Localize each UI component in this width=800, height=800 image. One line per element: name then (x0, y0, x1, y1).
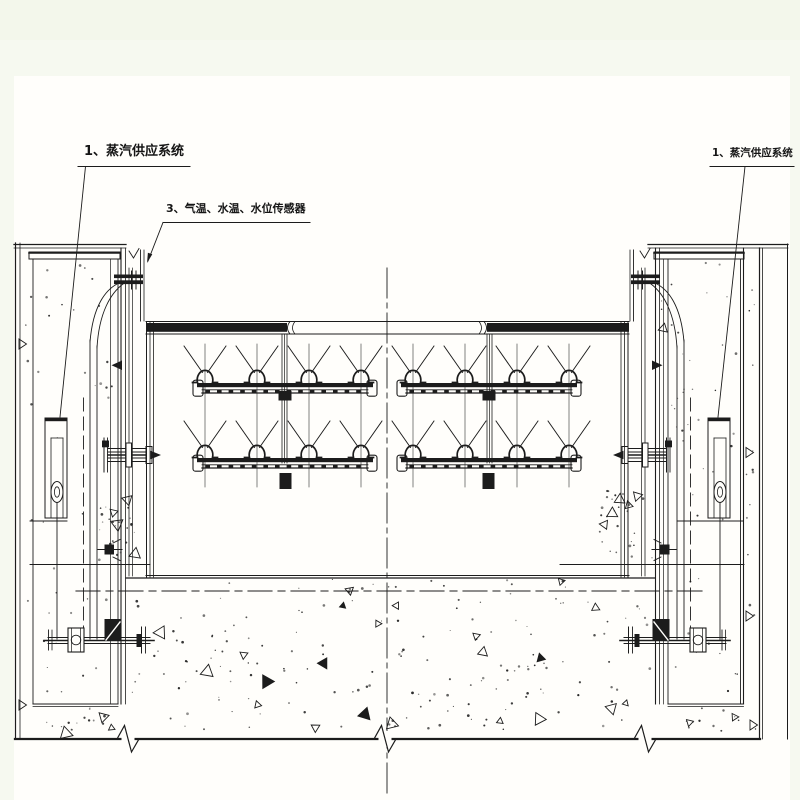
drawing-canvas: 1、蒸汽供应系统 3、气温、水温、水位传感器 1、蒸汽供应系统 (0, 0, 800, 800)
pipe-coupling (631, 275, 660, 279)
gate-top-beam-right (487, 323, 629, 332)
label-sensors: 3、气温、水温、水位传感器 (166, 200, 306, 216)
margin-top-band (0, 0, 800, 40)
paper-margins (0, 0, 800, 800)
label-steam-supply-right: 1、蒸汽供应系统 (712, 145, 793, 160)
gate-top-beam-left (146, 323, 287, 332)
paper-sheet (14, 76, 790, 800)
valve-body (68, 628, 84, 652)
label-steam-supply-left: 1、蒸汽供应系统 (84, 140, 184, 159)
valve-body (690, 628, 706, 652)
pipe-coupling (114, 275, 143, 279)
